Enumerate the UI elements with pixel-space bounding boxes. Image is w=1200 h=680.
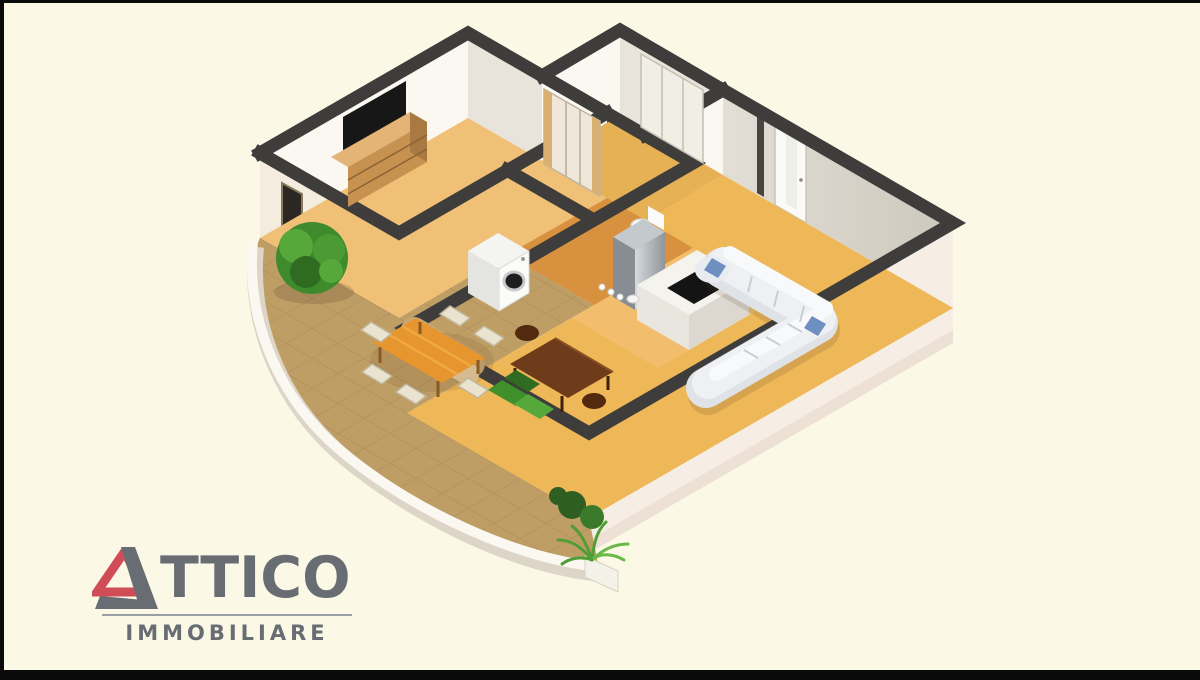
letterbox-left <box>0 0 4 680</box>
brand-subtitle: IMMOBILIARE <box>102 621 352 645</box>
screenshot-root: TTICO IMMOBILIARE <box>0 0 1200 680</box>
door-hinge-slit <box>757 110 764 197</box>
letterbox-top <box>0 0 1200 3</box>
brand-text: TTICO <box>160 545 351 611</box>
letterbox-bottom <box>0 670 1200 680</box>
brand-logo: TTICO IMMOBILIARE <box>92 545 364 645</box>
dining-chair-1 <box>515 325 539 341</box>
washer-door <box>504 272 524 290</box>
living-door-glass <box>786 132 797 210</box>
brand-row: TTICO <box>92 545 364 611</box>
parapet-end-block <box>585 556 618 592</box>
logo-a-mark <box>92 547 158 609</box>
logo-divider <box>102 614 352 616</box>
door-handle <box>799 178 803 182</box>
dining-chair-2 <box>582 393 606 409</box>
